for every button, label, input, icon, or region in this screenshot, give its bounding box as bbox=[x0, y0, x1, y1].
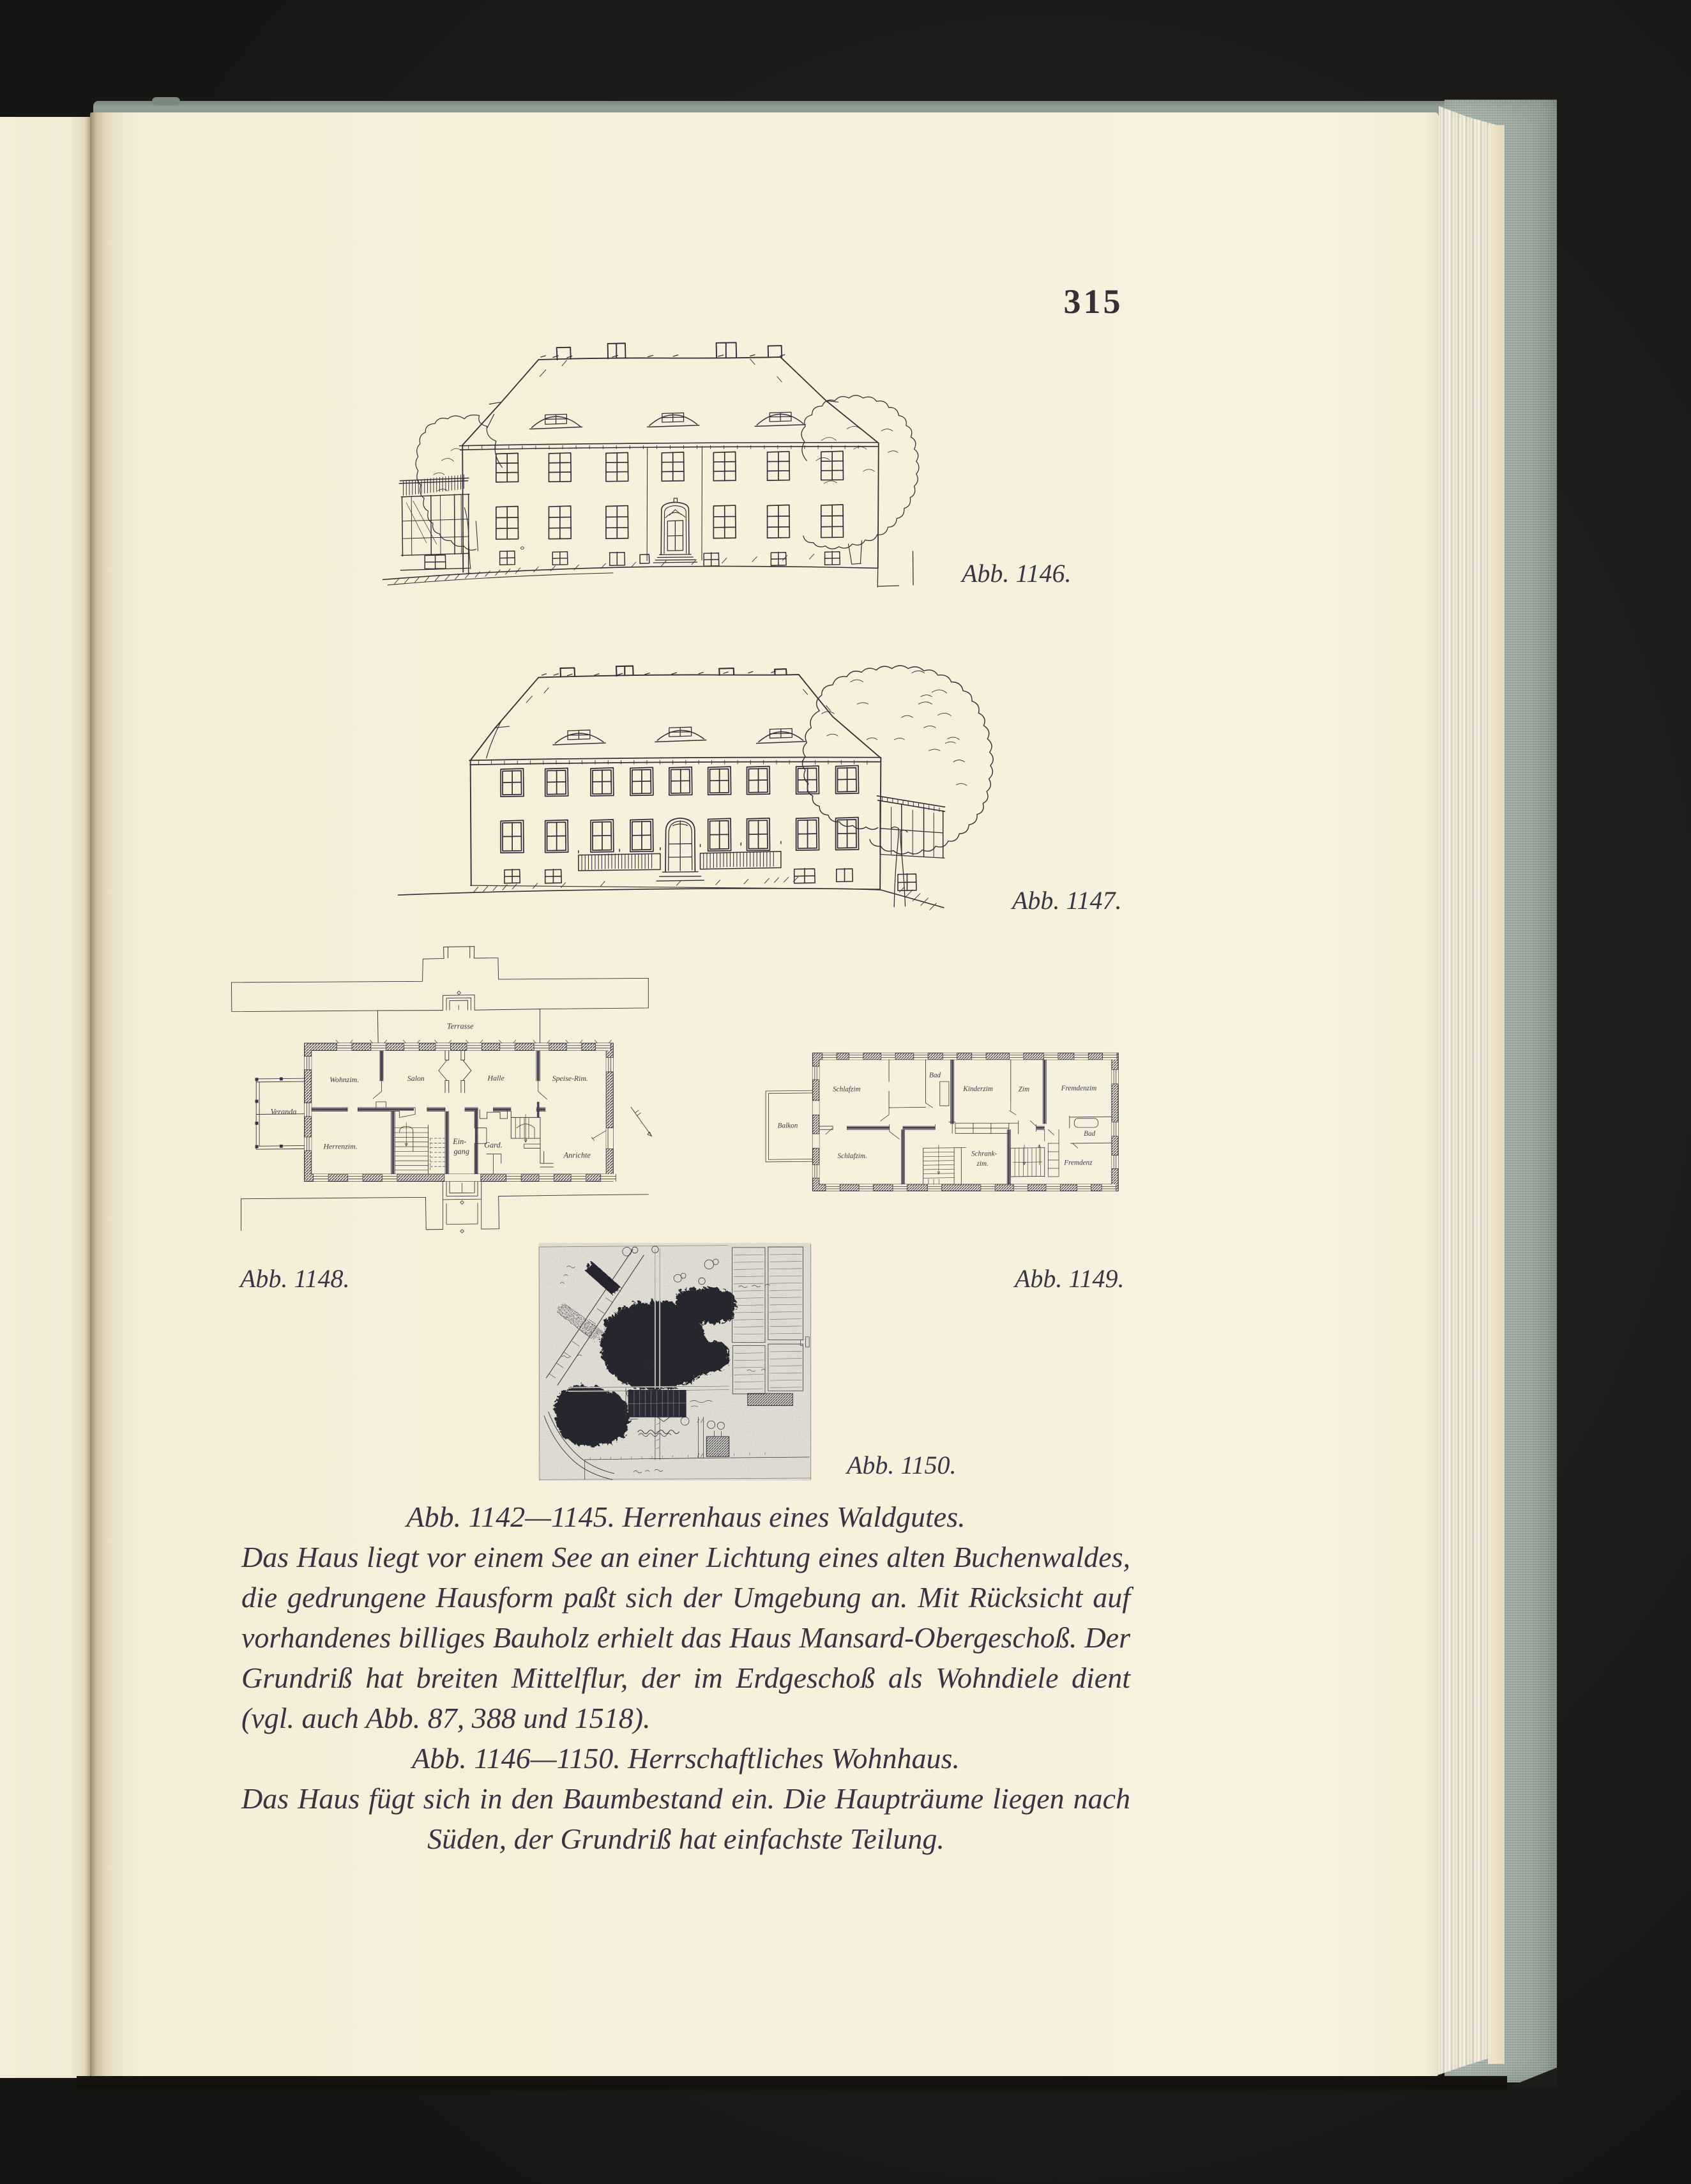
svg-text:Bad: Bad bbox=[1084, 1130, 1095, 1138]
svg-text:Schlafzim.: Schlafzim. bbox=[838, 1152, 867, 1160]
svg-text:Speise-Rim.: Speise-Rim. bbox=[552, 1074, 588, 1083]
svg-text:Halle: Halle bbox=[487, 1073, 504, 1082]
svg-text:Veranda: Veranda bbox=[271, 1107, 297, 1116]
svg-text:Fremdenzim: Fremdenzim bbox=[1061, 1085, 1096, 1092]
svg-text:Zim: Zim bbox=[1019, 1086, 1029, 1094]
svg-text:Balkon: Balkon bbox=[778, 1122, 798, 1129]
svg-text:Kinderzim: Kinderzim bbox=[962, 1085, 993, 1093]
svg-text:Fremdenz: Fremdenz bbox=[1063, 1159, 1093, 1166]
svg-text:Terrasse: Terrasse bbox=[447, 1022, 474, 1031]
svg-text:Salon: Salon bbox=[407, 1074, 425, 1083]
svg-text:Schrank-: Schrank- bbox=[971, 1150, 997, 1157]
svg-text:Bad: Bad bbox=[929, 1071, 941, 1079]
svg-text:Schlafzim: Schlafzim bbox=[833, 1086, 860, 1094]
svg-text:Wohnzim.: Wohnzim. bbox=[330, 1075, 359, 1084]
svg-text:Anrichte: Anrichte bbox=[563, 1151, 591, 1160]
svg-text:Herrenzim.: Herrenzim. bbox=[322, 1142, 357, 1150]
svg-text:gang: gang bbox=[454, 1147, 469, 1156]
svg-text:Gard.: Gard. bbox=[484, 1140, 502, 1149]
svg-text:Ein-: Ein- bbox=[452, 1137, 466, 1146]
svg-text:zim.: zim. bbox=[976, 1160, 989, 1168]
